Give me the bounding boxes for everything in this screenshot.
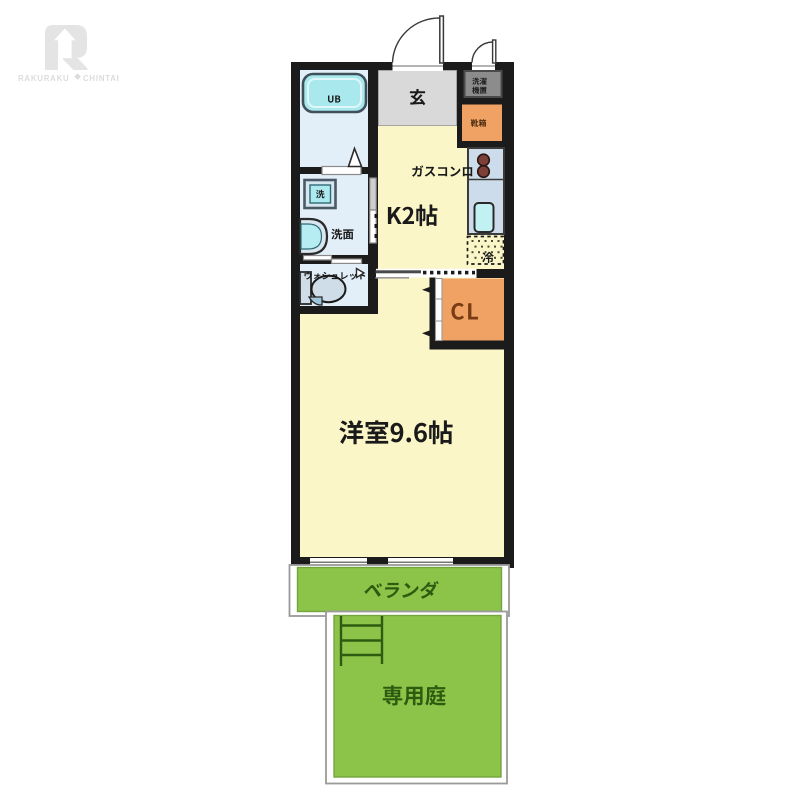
svg-text:CHINTAI: CHINTAI <box>83 74 120 83</box>
svg-text:RAKURAKU: RAKURAKU <box>18 74 69 83</box>
